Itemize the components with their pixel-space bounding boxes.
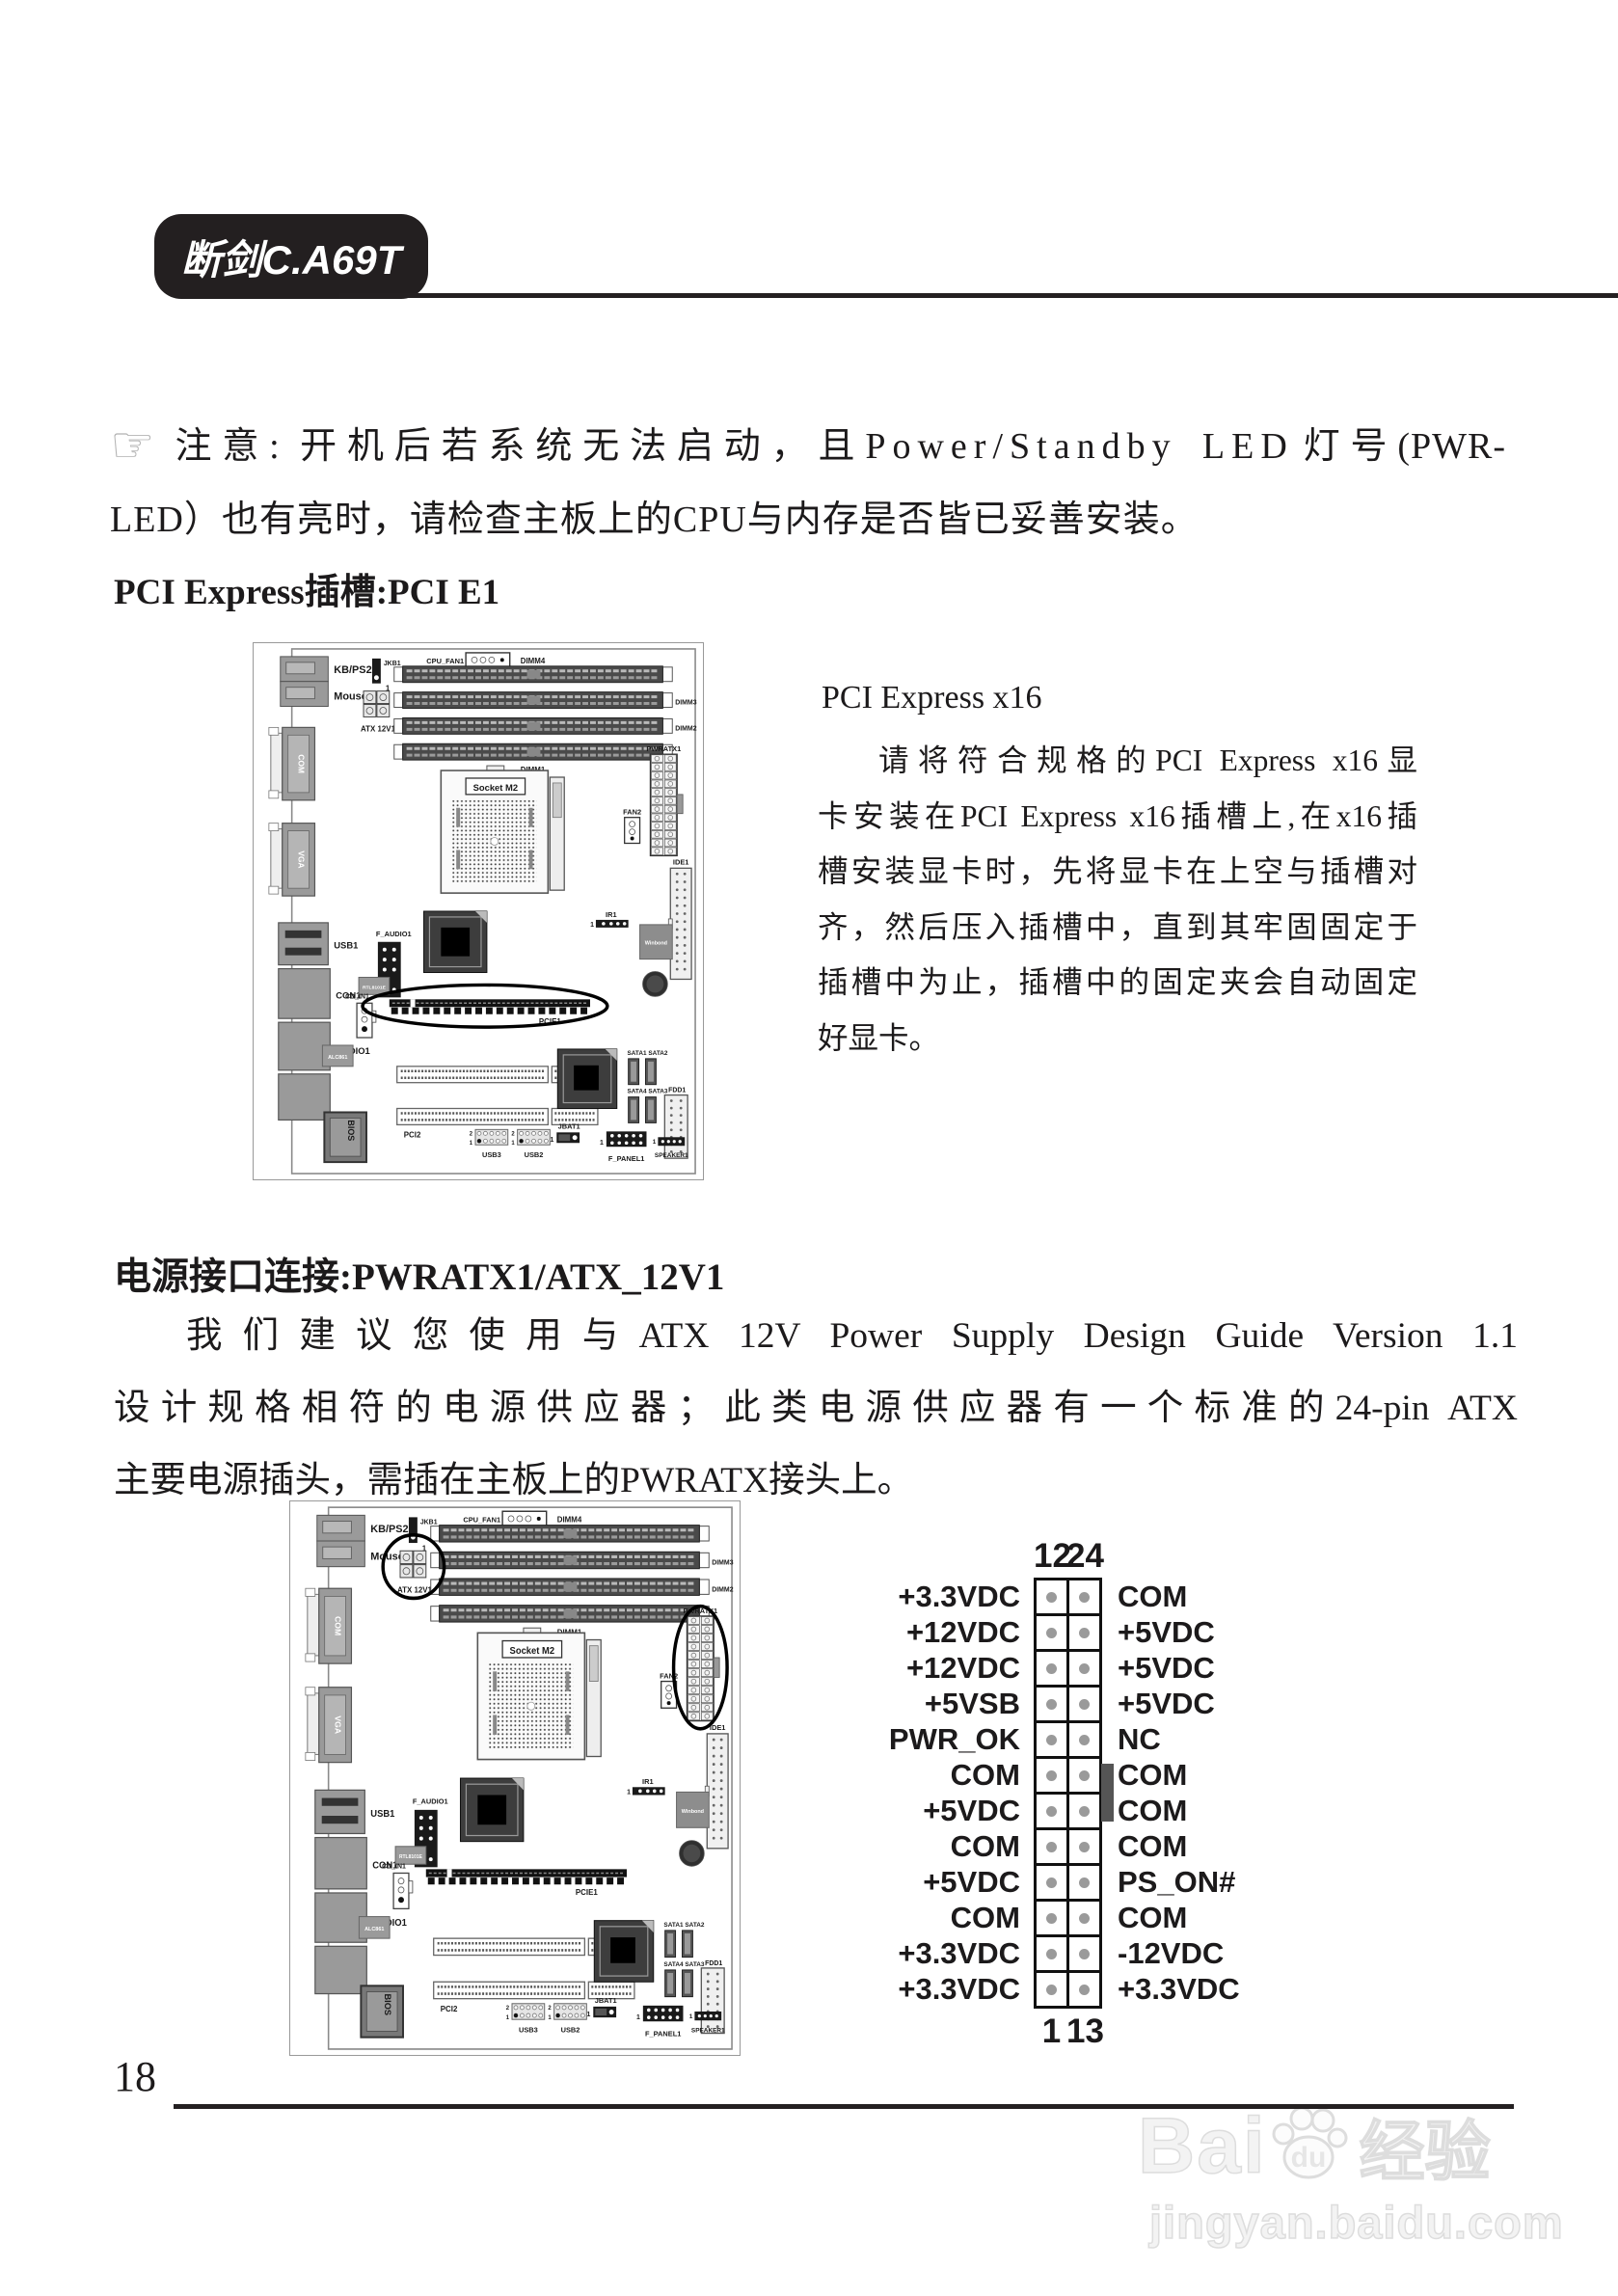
svg-text:F_PANEL1: F_PANEL1 <box>645 2030 681 2039</box>
model-tab: 断剑C.A69T <box>154 214 428 299</box>
pcie-subheading: PCI Express x16 <box>822 680 1042 716</box>
ide1-connector: IDE1 <box>668 857 691 979</box>
pinout-pin-cell <box>1066 1685 1102 1723</box>
pinout-left-label: +3.3VDC <box>839 1578 1034 1616</box>
svg-text:DIMM2: DIMM2 <box>675 725 696 732</box>
svg-text:IR1: IR1 <box>606 910 617 919</box>
section-heading-pcie: PCI Express插槽:PCI E1 <box>114 562 499 614</box>
pinout-right-label: COM <box>1102 1827 1187 1866</box>
watermark-url: jingyan.baidu.com <box>1149 2196 1601 2249</box>
pin-dot <box>1046 1949 1057 1959</box>
svg-text:FDD1: FDD1 <box>668 1088 686 1094</box>
pwratx1-connector: PWRATX1 <box>683 1607 719 1721</box>
pinout-row: COMCOM <box>839 1899 1340 1937</box>
pinout-pin-cell <box>1034 1578 1069 1616</box>
pinout-row: PWR_OKNC <box>839 1720 1340 1759</box>
ide1-connector: IDE1 <box>705 1723 728 1849</box>
pin-dot <box>1079 1806 1090 1817</box>
pin-dot <box>1046 1806 1057 1817</box>
pinout-row: +5VDCPS_ON# <box>839 1863 1340 1902</box>
pin-dot <box>1079 1592 1090 1603</box>
manual-page: 断剑C.A69T ☞注意: 开机后若系统无法启动，且Power/Standby … <box>0 0 1618 2296</box>
pinout-pin-cell <box>1066 1899 1102 1937</box>
pinout-pin-cell <box>1034 1934 1069 1973</box>
svg-text:COM: COM <box>297 754 307 773</box>
svg-text:1: 1 <box>636 2014 640 2021</box>
section-heading-power: 电源接口连接:PWRATX1/ATX_12V1 <box>114 1247 724 1301</box>
svg-text:du: du <box>1290 2142 1326 2174</box>
pin-dot <box>1079 1628 1090 1638</box>
pinout-pin-cell <box>1066 1613 1102 1652</box>
svg-text:F_AUDIO1: F_AUDIO1 <box>413 1797 448 1806</box>
svg-text:1: 1 <box>653 1139 657 1146</box>
svg-text:SATA1 SATA2: SATA1 SATA2 <box>627 1050 667 1057</box>
pinout-right-label: PS_ON# <box>1102 1863 1235 1902</box>
svg-text:PCI2: PCI2 <box>404 1130 421 1139</box>
svg-text:RTL8101E: RTL8101E <box>399 1854 423 1860</box>
svg-text:F_PANEL1: F_PANEL1 <box>608 1154 644 1163</box>
pinout-pin-cell <box>1034 1649 1069 1688</box>
pinout-row: COMCOM <box>839 1756 1340 1795</box>
pin-dot <box>1079 1699 1090 1710</box>
svg-text:FAN2: FAN2 <box>623 808 641 817</box>
svg-text:USB3: USB3 <box>519 2025 538 2034</box>
header-rule <box>339 293 1618 298</box>
northbridge-chip <box>423 911 486 973</box>
svg-text:COM: COM <box>334 1616 343 1635</box>
pinout-row: +5VSB+5VDC <box>839 1685 1340 1723</box>
svg-text:SATA4 SATA3: SATA4 SATA3 <box>627 1089 667 1095</box>
svg-text:ATX 12V1: ATX 12V1 <box>397 1585 432 1594</box>
svg-text:KB/PS2: KB/PS2 <box>334 664 371 676</box>
alc861-chip: ALC861 <box>359 1917 390 1939</box>
alc861-chip: ALC861 <box>322 1045 353 1067</box>
fdd1-connector: FDD1 <box>701 1960 724 2034</box>
bios-chip: BIOS <box>324 1112 366 1162</box>
motherboard-diagram-power: KB/PS2Mouse/PS2JKB11ATX 12V1CPU_FAN1DIMM… <box>289 1500 741 2056</box>
pin-dot <box>1046 1770 1057 1781</box>
winbond-chip: Winbond <box>677 1792 710 1827</box>
svg-text:USB2: USB2 <box>525 1150 544 1159</box>
pinout-pin-cell <box>1066 1934 1102 1973</box>
paragraph-line: 槽安装显卡时，先将显卡在上空与插槽对 <box>818 844 1417 900</box>
pin-dot <box>1079 1842 1090 1852</box>
pinout-pin-cell <box>1034 1720 1069 1759</box>
southbridge-chip <box>594 1921 653 1983</box>
svg-text:DIMM2: DIMM2 <box>712 1586 733 1593</box>
svg-text:SATA1 SATA2: SATA1 SATA2 <box>663 1922 704 1929</box>
svg-text:CPU_FAN1: CPU_FAN1 <box>463 1515 500 1524</box>
svg-text:BIOS: BIOS <box>346 1120 356 1141</box>
svg-text:JBAT1: JBAT1 <box>595 1996 617 2005</box>
motherboard-svg: KB/PS2Mouse/PS2JKB11ATX 12V1CPU_FAN1DIMM… <box>290 1501 738 2051</box>
pin-dot <box>1046 1913 1057 1924</box>
svg-text:JKB1: JKB1 <box>420 1519 438 1526</box>
socket-m2: Socket M2 <box>477 1628 601 1759</box>
svg-text:1: 1 <box>586 2012 590 2018</box>
winbond-chip: Winbond <box>640 925 673 959</box>
svg-text:ALC861: ALC861 <box>364 1927 384 1932</box>
rtl8101e-chip: RTL8101E <box>359 977 390 994</box>
svg-text:Winbond: Winbond <box>645 941 667 947</box>
svg-text:Socket M2: Socket M2 <box>510 1646 555 1657</box>
svg-text:KB/PS2: KB/PS2 <box>370 1524 408 1535</box>
pin-dot <box>1046 1842 1057 1852</box>
svg-text:RTL8101E: RTL8101E <box>363 985 387 990</box>
connector-clip-tab <box>1101 1764 1114 1822</box>
watermark-logo-row: Bai du 经验 <box>1138 2098 1601 2194</box>
vga-port: VGA <box>306 1688 352 1763</box>
svg-text:PCI2: PCI2 <box>441 2005 458 2013</box>
pinout-left-label: +12VDC <box>839 1613 1034 1652</box>
pinout-row: +3.3VDCCOM <box>839 1578 1340 1616</box>
pinout-left-label: +5VDC <box>839 1863 1034 1902</box>
motherboard-svg: KB/PS2Mouse/PS2JKB11ATX 12V1CPU_FAN1DIMM… <box>254 643 701 1175</box>
pinout-right-label: COM <box>1102 1578 1187 1616</box>
svg-text:DIMM4: DIMM4 <box>557 1515 582 1524</box>
pinout-pin-cell <box>1034 1756 1069 1795</box>
pin-dot <box>1046 1985 1057 1995</box>
com-port: COM <box>306 1588 352 1663</box>
svg-text:1: 1 <box>689 2013 693 2020</box>
pinout-right-label: +5VDC <box>1102 1685 1215 1723</box>
pinout-right-label: +5VDC <box>1102 1649 1215 1688</box>
pinout-right-label: COM <box>1102 1792 1187 1830</box>
pointing-hand-icon: ☞ <box>110 417 156 474</box>
svg-text:DIMM3: DIMM3 <box>675 700 696 707</box>
svg-text:SPEAKER1: SPEAKER1 <box>655 1152 688 1159</box>
pinout-left-label: +5VSB <box>839 1685 1034 1723</box>
southbridge-chip <box>557 1049 616 1109</box>
footer-rule <box>174 2104 1514 2109</box>
svg-text:USB3: USB3 <box>482 1150 501 1159</box>
paragraph-line: 卡安装在PCI Express x16插槽上,在x16插 <box>818 789 1417 845</box>
pinout-right-label: COM <box>1102 1756 1187 1795</box>
battery <box>680 1841 705 1867</box>
pinout-row: +3.3VDC-12VDC <box>839 1934 1340 1973</box>
pinout-right-label: -12VDC <box>1102 1934 1224 1973</box>
pinout-grid: +3.3VDCCOM+12VDC+5VDC+12VDC+5VDC+5VSB+5V… <box>839 1578 1340 2009</box>
pin-dot <box>1046 1735 1057 1745</box>
svg-text:IR1: IR1 <box>642 1777 654 1786</box>
paragraph-line: 好显卡。 <box>818 1011 1417 1067</box>
pinout-pin-cell <box>1034 1792 1069 1830</box>
pin-dot <box>1046 1877 1057 1888</box>
paragraph-line: 齐，然后压入插槽中，直到其牢固固定于 <box>818 900 1417 956</box>
pin-dot <box>1079 1663 1090 1674</box>
atx-pinout-table: 1224+3.3VDCCOM+12VDC+5VDC+12VDC+5VDC+5VS… <box>839 1535 1340 2055</box>
pinout-row: COMCOM <box>839 1827 1340 1866</box>
svg-text:DIMM4: DIMM4 <box>521 657 546 665</box>
vga-port: VGA <box>269 824 315 896</box>
pin-dot <box>1079 1985 1090 1995</box>
paragraph-line: 插槽中为止，插槽中的固定夹会自动固定 <box>818 955 1417 1011</box>
pin-dot <box>1046 1592 1057 1603</box>
svg-text:JKB1: JKB1 <box>384 661 401 667</box>
svg-text:F_AUDIO1: F_AUDIO1 <box>376 930 412 938</box>
pinout-row: +12VDC+5VDC <box>839 1613 1340 1652</box>
pinout-right-label: +3.3VDC <box>1102 1970 1240 2009</box>
svg-text:CD_IN1: CD_IN1 <box>382 1863 406 1870</box>
pinout-pin-cell <box>1034 1827 1069 1866</box>
model-tab-title: 断剑C.A69T <box>181 228 402 286</box>
svg-text:USB1: USB1 <box>370 1809 395 1820</box>
svg-text:PCIE1: PCIE1 <box>576 1888 598 1897</box>
rtl8101e-chip: RTL8101E <box>395 1847 426 1864</box>
pinout-pin-cell <box>1066 1970 1102 2009</box>
svg-text:VGA: VGA <box>297 851 307 868</box>
pinout-left-label: +5VDC <box>839 1792 1034 1830</box>
battery <box>643 972 668 997</box>
pin-dot <box>1079 1913 1090 1924</box>
svg-text:1: 1 <box>600 1140 604 1147</box>
pinout-left-label: +12VDC <box>839 1649 1034 1688</box>
pinout-pin-cell <box>1066 1863 1102 1902</box>
pinout-left-label: +3.3VDC <box>839 1970 1034 2009</box>
pinout-pin-cell <box>1034 1899 1069 1937</box>
svg-text:VGA: VGA <box>334 1715 343 1734</box>
pinout-pin-cell <box>1034 1685 1069 1723</box>
pinout-pin-cell <box>1066 1827 1102 1866</box>
pinout-top-pins: 1224 <box>839 1535 1340 1578</box>
svg-text:1: 1 <box>590 922 594 929</box>
pcie-paragraph: 请将符合规格的PCI Express x16显卡安装在PCI Express x… <box>818 733 1417 1066</box>
pinout-pin-cell <box>1066 1756 1102 1795</box>
motherboard-diagram-pcie: KB/PS2Mouse/PS2JKB11ATX 12V1CPU_FAN1DIMM… <box>253 642 704 1180</box>
pinout-pin-cell <box>1066 1649 1102 1688</box>
svg-text:PWRATX1: PWRATX1 <box>646 744 681 753</box>
svg-text:SATA4 SATA3: SATA4 SATA3 <box>663 1961 704 1968</box>
pinout-pin-cell <box>1066 1720 1102 1759</box>
pinout-left-label: COM <box>839 1827 1034 1866</box>
note-line-2: LED）也有亮时，请检查主板上的CPU与内存是否皆已妥善安装。 <box>110 483 1506 556</box>
paragraph-line: 设计规格相符的电源供应器；此类电源供应器有一个标准的24-pin ATX <box>114 1372 1518 1445</box>
fan2-connector: FAN2 <box>623 808 641 844</box>
pinout-left-label: PWR_OK <box>839 1720 1034 1759</box>
baidu-paw-icon: du <box>1267 2105 1350 2188</box>
paragraph-line: 请将符合规格的PCI Express x16显 <box>818 733 1417 789</box>
svg-text:USB1: USB1 <box>334 940 358 951</box>
svg-text:IDE1: IDE1 <box>673 857 689 866</box>
pin-dot <box>1046 1628 1057 1638</box>
power-paragraph: 我们建议您使用与ATX 12V Power Supply Design Guid… <box>114 1300 1518 1517</box>
svg-text:1: 1 <box>627 1789 631 1796</box>
svg-text:SPEAKER1: SPEAKER1 <box>691 2027 725 2034</box>
pinout-right-label: NC <box>1102 1720 1161 1759</box>
svg-text:BIOS: BIOS <box>383 1994 392 2016</box>
note-line-1: ☞注意: 开机后若系统无法启动，且Power/Standby LED灯号(PWR… <box>110 409 1506 483</box>
pin-dot <box>1079 1949 1090 1959</box>
pin-dot <box>1079 1877 1090 1888</box>
pinout-row: +12VDC+5VDC <box>839 1649 1340 1688</box>
svg-text:Winbond: Winbond <box>682 1809 705 1815</box>
com-port: COM <box>269 727 315 799</box>
page-number: 18 <box>114 2052 156 2101</box>
svg-text:1: 1 <box>550 1137 553 1144</box>
svg-text:CPU_FAN1: CPU_FAN1 <box>426 657 464 665</box>
svg-text:Socket M2: Socket M2 <box>473 782 518 793</box>
bios-chip: BIOS <box>361 1985 403 2037</box>
svg-text:ATX 12V1: ATX 12V1 <box>361 724 396 733</box>
pin-dot <box>1079 1735 1090 1745</box>
pin-dot <box>1079 1770 1090 1781</box>
pinout-row: +5VDCCOM <box>839 1792 1340 1830</box>
svg-text:DIMM3: DIMM3 <box>712 1560 733 1567</box>
pinout-pin-cell <box>1066 1578 1102 1616</box>
pinout-pin-cell <box>1034 1863 1069 1902</box>
fdd1-connector: FDD1 <box>664 1088 688 1159</box>
pwratx1-connector: PWRATX1 <box>646 744 683 855</box>
paragraph-line: 我们建议您使用与ATX 12V Power Supply Design Guid… <box>114 1300 1518 1372</box>
pinout-row: +3.3VDC+3.3VDC <box>839 1970 1340 2009</box>
baidu-watermark: Bai du 经验 jingyan.baidu.com <box>1138 2098 1601 2249</box>
svg-text:FDD1: FDD1 <box>705 1960 722 1967</box>
note-block: ☞注意: 开机后若系统无法启动，且Power/Standby LED灯号(PWR… <box>110 409 1506 556</box>
pinout-right-label: COM <box>1102 1899 1187 1937</box>
northbridge-chip <box>460 1778 523 1842</box>
socket-m2: Socket M2 <box>441 766 564 893</box>
pinout-pin-cell <box>1066 1792 1102 1830</box>
pin-dot <box>1046 1663 1057 1674</box>
pinout-bottom-pins: 113 <box>839 2009 1340 2055</box>
pinout-left-label: COM <box>839 1899 1034 1937</box>
svg-text:JBAT1: JBAT1 <box>558 1121 580 1130</box>
pin-dot <box>1046 1699 1057 1710</box>
pinout-pin-cell <box>1034 1613 1069 1652</box>
pinout-pin-cell <box>1034 1970 1069 2009</box>
pinout-right-label: +5VDC <box>1102 1613 1215 1652</box>
svg-text:USB2: USB2 <box>561 2025 580 2034</box>
svg-text:ALC861: ALC861 <box>328 1055 347 1061</box>
pinout-left-label: COM <box>839 1756 1034 1795</box>
pinout-left-label: +3.3VDC <box>839 1934 1034 1973</box>
